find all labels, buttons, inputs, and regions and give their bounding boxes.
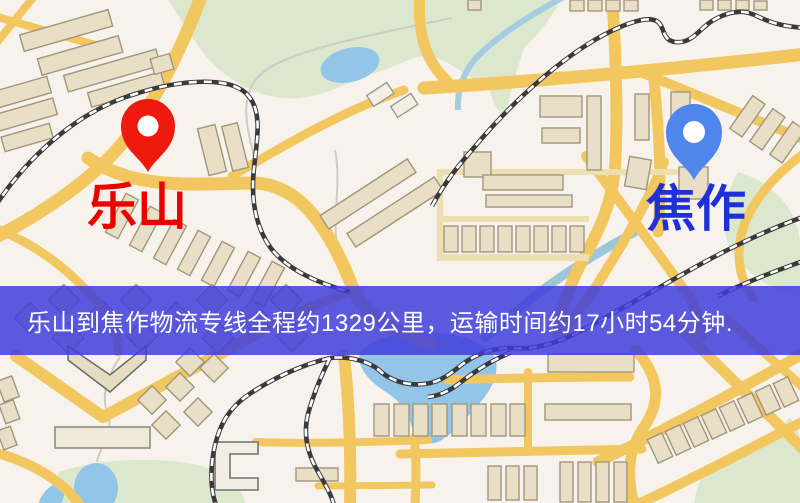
origin-label: 乐山 [87, 179, 187, 235]
destination-pin-icon [666, 104, 722, 180]
logistics-route-map-image: 乐山 焦作 乐山到焦作物流专线全程约1329公里，运输时间约17小时54分钟. [0, 0, 800, 503]
map-canvas: 乐山 焦作 [0, 0, 800, 503]
route-info-banner: 乐山到焦作物流专线全程约1329公里，运输时间约17小时54分钟. [0, 286, 800, 355]
route-info-text: 乐山到焦作物流专线全程约1329公里，运输时间约17小时54分钟. [27, 303, 733, 338]
origin-pin-icon [121, 99, 175, 172]
destination-label: 焦作 [646, 181, 746, 237]
